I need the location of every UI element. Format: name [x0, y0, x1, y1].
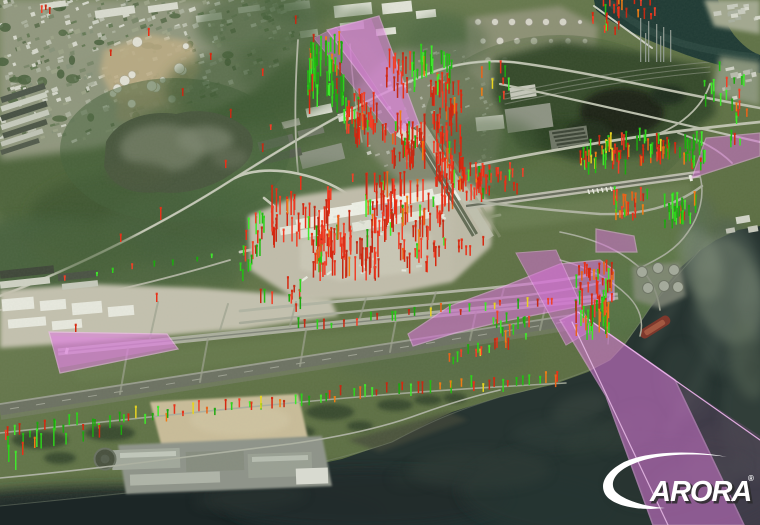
svg-text:®: ®: [748, 474, 754, 483]
svg-text:ARORA: ARORA: [649, 476, 751, 508]
